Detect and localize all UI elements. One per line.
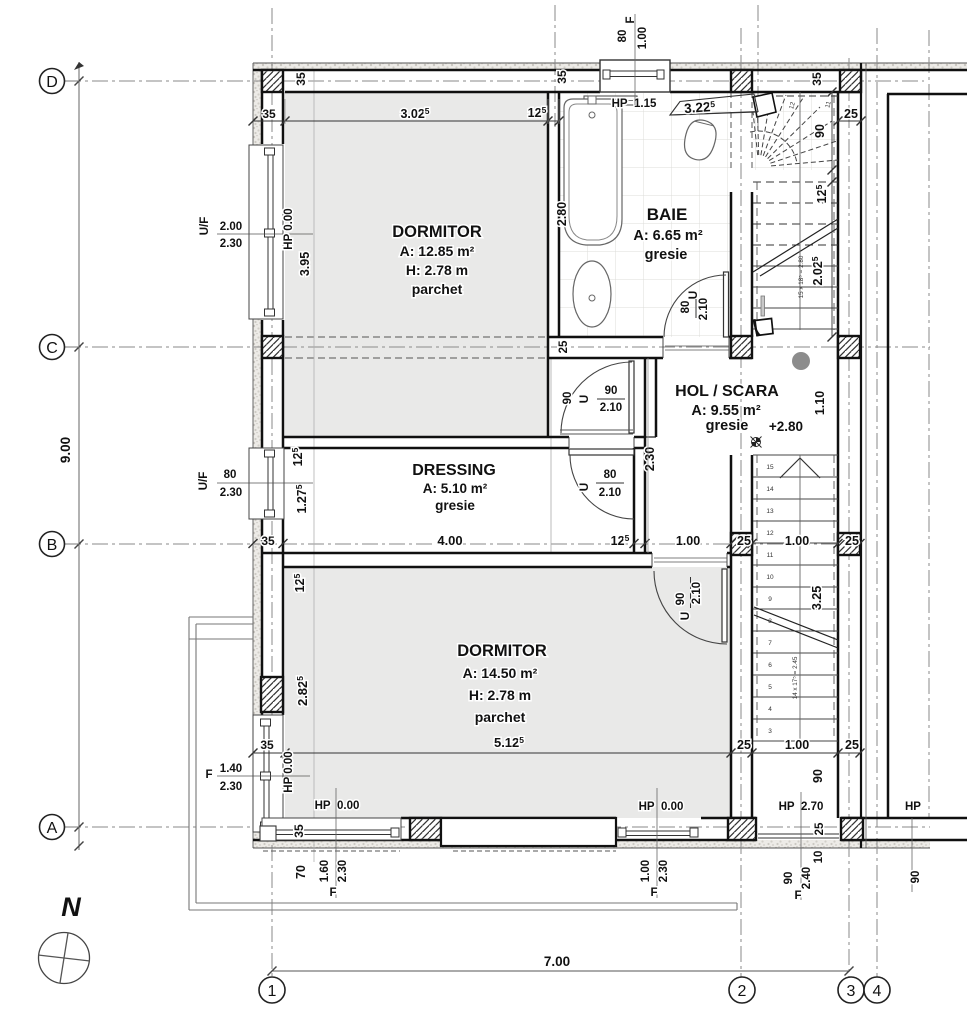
svg-text:2.30: 2.30 <box>337 860 349 882</box>
svg-text:D: D <box>46 74 58 91</box>
svg-text:80: 80 <box>604 469 617 481</box>
svg-text:HP 0.00: HP 0.00 <box>283 208 295 249</box>
svg-text:3.25: 3.25 <box>810 586 824 610</box>
svg-text:3: 3 <box>847 983 856 1000</box>
svg-text:9.00: 9.00 <box>58 437 73 463</box>
svg-text:U: U <box>577 483 591 492</box>
svg-text:80: 80 <box>617 30 629 43</box>
svg-text:DORMITOR: DORMITOR <box>392 223 482 241</box>
svg-text:9: 9 <box>768 596 772 603</box>
svg-text:80: 80 <box>680 301 692 314</box>
svg-text:HOL / SCARA: HOL / SCARA <box>675 383 779 400</box>
svg-text:25: 25 <box>558 340 570 353</box>
svg-text:90: 90 <box>910 871 922 884</box>
svg-text:10: 10 <box>766 574 774 581</box>
svg-text:N: N <box>61 892 81 922</box>
svg-text:25: 25 <box>845 534 859 548</box>
svg-text:11: 11 <box>767 552 774 559</box>
svg-text:H: 2.78 m: H: 2.78 m <box>406 262 468 278</box>
svg-text:12: 12 <box>766 530 774 537</box>
svg-text:gresie: gresie <box>645 247 688 263</box>
svg-text:DORMITOR: DORMITOR <box>457 642 547 660</box>
svg-text:70: 70 <box>294 865 308 879</box>
svg-text:2.30: 2.30 <box>220 781 242 793</box>
svg-text:25: 25 <box>845 738 859 752</box>
svg-text:15: 15 <box>766 464 774 471</box>
svg-text:gresie: gresie <box>435 498 475 513</box>
svg-text:2.30: 2.30 <box>220 238 242 250</box>
svg-text:HP 0.00: HP 0.00 <box>283 751 295 792</box>
svg-text:25: 25 <box>737 534 751 548</box>
svg-text:parchet: parchet <box>475 709 526 725</box>
svg-text:A: A <box>47 820 58 837</box>
svg-text:1: 1 <box>268 983 277 1000</box>
svg-text:2.40: 2.40 <box>801 867 813 889</box>
svg-text:13: 13 <box>766 508 774 515</box>
svg-text:2.10: 2.10 <box>698 298 710 320</box>
svg-text:25: 25 <box>844 107 858 121</box>
svg-text:A: 12.85 m²: A: 12.85 m² <box>400 243 475 259</box>
svg-text:90: 90 <box>813 124 827 138</box>
svg-text:HP: HP <box>905 801 921 813</box>
svg-text:35: 35 <box>262 107 276 121</box>
svg-text:1.10: 1.10 <box>813 391 827 415</box>
svg-text:BAIE: BAIE <box>647 205 688 224</box>
svg-text:8: 8 <box>768 618 772 625</box>
svg-text:gresie: gresie <box>706 418 749 434</box>
svg-text:F: F <box>205 769 212 781</box>
svg-text:35: 35 <box>261 534 275 548</box>
svg-text:2.30: 2.30 <box>658 860 670 882</box>
svg-text:1.00: 1.00 <box>676 534 700 548</box>
svg-text:parchet: parchet <box>412 281 463 297</box>
svg-text:2.00: 2.00 <box>220 221 242 233</box>
svg-text:1.00: 1.00 <box>640 860 652 882</box>
svg-text:90: 90 <box>675 593 687 606</box>
svg-text:HP 0.00: HP 0.00 <box>639 801 684 813</box>
svg-text:25: 25 <box>737 738 751 752</box>
svg-text:4: 4 <box>768 706 772 713</box>
svg-text:25: 25 <box>814 822 826 835</box>
svg-text:1.00: 1.00 <box>785 738 809 752</box>
svg-text:35: 35 <box>260 738 274 752</box>
svg-text:90: 90 <box>811 769 825 783</box>
svg-text:35: 35 <box>292 824 306 838</box>
svg-text:F: F <box>329 887 336 899</box>
svg-text:A: 14.50 m²: A: 14.50 m² <box>463 665 538 681</box>
svg-text:2.10: 2.10 <box>599 487 621 499</box>
svg-text:3.95: 3.95 <box>298 252 312 276</box>
svg-text:1.00: 1.00 <box>637 27 649 49</box>
svg-text:4: 4 <box>873 983 882 1000</box>
svg-text:U/F: U/F <box>198 472 210 491</box>
svg-text:90: 90 <box>783 872 795 885</box>
svg-text:7.00: 7.00 <box>544 954 570 969</box>
svg-text:35: 35 <box>294 72 308 86</box>
svg-text:A: 6.65 m²: A: 6.65 m² <box>633 228 702 244</box>
svg-text:2.10: 2.10 <box>691 582 703 604</box>
svg-text:DRESSING: DRESSING <box>412 462 496 479</box>
svg-text:+2.80: +2.80 <box>769 419 803 434</box>
svg-text:35: 35 <box>555 70 569 84</box>
svg-text:HP 0.00: HP 0.00 <box>315 800 360 812</box>
svg-text:14: 14 <box>766 486 774 493</box>
svg-text:A: 5.10 m²: A: 5.10 m² <box>423 481 488 496</box>
svg-text:10: 10 <box>813 851 825 864</box>
svg-text:U: U <box>678 612 692 621</box>
svg-text:35: 35 <box>810 72 824 86</box>
svg-text:HP 1.15: HP 1.15 <box>612 98 657 110</box>
svg-text:U: U <box>577 395 591 404</box>
svg-text:2.80: 2.80 <box>555 202 569 226</box>
svg-text:15 x 18⁵ = 2.80: 15 x 18⁵ = 2.80 <box>798 255 805 298</box>
svg-text:3: 3 <box>768 728 772 735</box>
svg-text:90: 90 <box>562 392 574 405</box>
svg-text:80: 80 <box>224 469 237 481</box>
svg-text:5: 5 <box>768 684 772 691</box>
svg-text:7: 7 <box>768 640 772 647</box>
svg-text:2.30: 2.30 <box>643 447 657 471</box>
svg-text:F: F <box>650 887 657 899</box>
svg-text:14 x 17⁵ = 2.45: 14 x 17⁵ = 2.45 <box>792 656 799 699</box>
svg-text:B: B <box>47 537 58 554</box>
svg-text:A: 9.55 m²: A: 9.55 m² <box>691 403 760 419</box>
svg-text:90: 90 <box>605 385 618 397</box>
svg-text:1.00: 1.00 <box>785 534 809 548</box>
svg-text:F: F <box>794 890 801 902</box>
svg-text:6: 6 <box>768 662 772 669</box>
svg-text:2.10: 2.10 <box>600 402 622 414</box>
svg-text:2.30: 2.30 <box>220 487 242 499</box>
svg-text:4.00: 4.00 <box>437 533 462 548</box>
svg-text:H: 2.78 m: H: 2.78 m <box>469 687 531 703</box>
svg-text:2: 2 <box>738 983 747 1000</box>
svg-text:U/F: U/F <box>199 217 211 236</box>
svg-text:C: C <box>46 340 58 357</box>
svg-text:1.60: 1.60 <box>319 860 331 882</box>
svg-text:1.40: 1.40 <box>220 763 242 775</box>
